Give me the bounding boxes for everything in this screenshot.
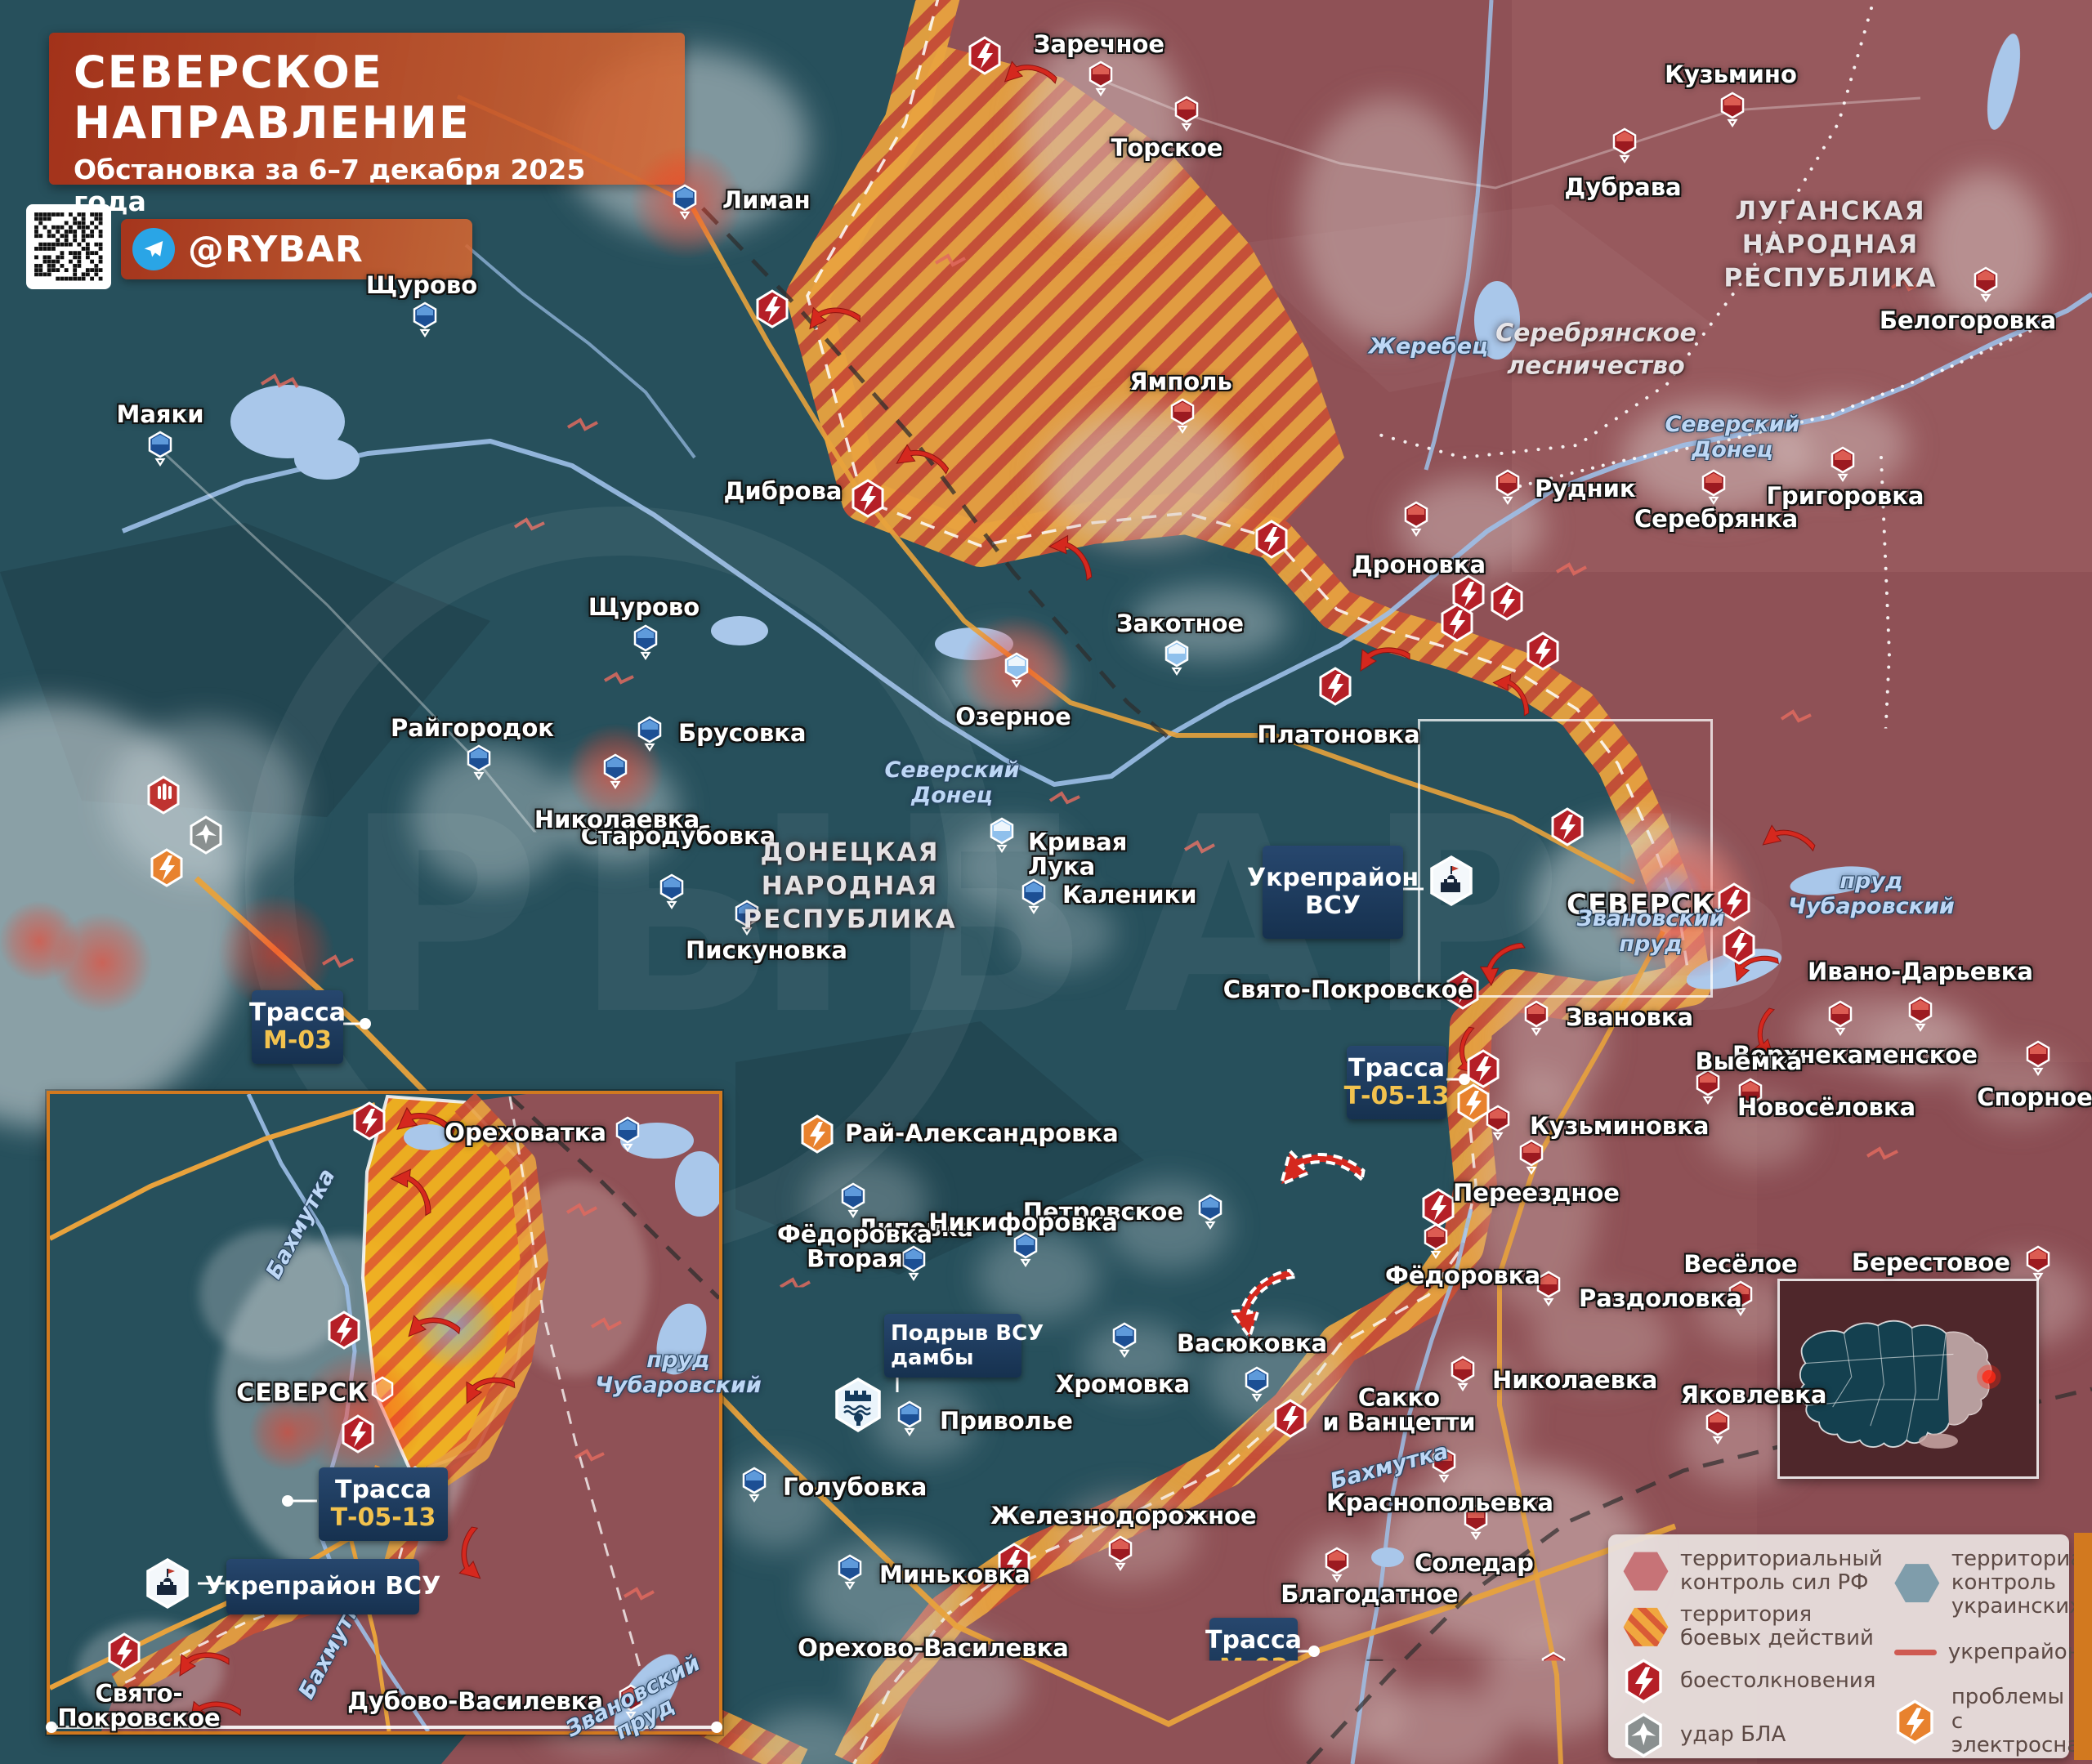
road-callout: Укрепрайон ВСУ xyxy=(226,1559,419,1614)
place-label-line: и Ванцетти xyxy=(1322,1410,1475,1435)
callout-line: М-03 xyxy=(1219,1655,1288,1681)
place-label-line: Маяки xyxy=(116,403,203,427)
region-label-line: НАРОДНАЯ xyxy=(743,870,956,904)
place-label-line: Берховка xyxy=(1494,1744,1624,1764)
road-callout: ТрассаМ-03 xyxy=(1209,1618,1298,1691)
place-label: СЕВЕРСК xyxy=(236,1382,368,1407)
callout-line: Т-05-13 xyxy=(331,1505,436,1531)
place-label-line: Переездное xyxy=(1453,1181,1620,1206)
place-label-line: Лиман xyxy=(722,189,811,213)
place-label: Райгородок xyxy=(391,717,554,741)
place-label: Ивано-Дарьевка xyxy=(1808,960,2033,985)
callout-line: Трасса xyxy=(1348,1056,1445,1082)
road-callout: ТрассаМ-03 xyxy=(252,990,343,1064)
water-label: прудЧубаровский xyxy=(595,1347,762,1398)
place-label-line: Покровское xyxy=(57,1706,220,1731)
water-label: Бахмутка xyxy=(261,1164,341,1283)
place-label-line: Берестовое xyxy=(1852,1251,2010,1275)
water-label: Жеребец xyxy=(1369,333,1488,359)
water-label-line: пруд xyxy=(595,1347,762,1373)
place-label: Васюковка xyxy=(1177,1332,1327,1356)
place-label-line: Диброва xyxy=(724,480,843,504)
place-label: Новосёловка xyxy=(1737,1096,1915,1120)
region-label-line: Серебрянское xyxy=(1495,317,1696,350)
callout-line: Трасса xyxy=(249,1000,346,1026)
road-callout: ТрассаТ-05-13 xyxy=(319,1467,448,1541)
road-callout: УкрепрайонВСУ xyxy=(1263,846,1403,939)
region-label-line: ДОНЕЦКАЯ xyxy=(743,837,956,870)
place-label-line: Красная Гора xyxy=(1326,1739,1513,1764)
callout-line: Укрепрайон xyxy=(1247,865,1419,891)
place-label-line: Соледар xyxy=(1415,1552,1534,1576)
place-label-line: Весёлое xyxy=(1683,1253,1797,1277)
place-label-line: Рудник xyxy=(1535,477,1636,502)
callout-line: ВСУ xyxy=(1305,893,1361,919)
water-label-line: Северский xyxy=(1665,412,1799,437)
place-label: Свято-Покровское xyxy=(1223,978,1473,1003)
place-label-line: Заречное xyxy=(1034,33,1164,57)
place-label: Маяки xyxy=(116,403,203,427)
place-label-line: Голубовка xyxy=(783,1476,927,1500)
region-label: ДОНЕЦКАЯНАРОДНАЯРЕСПУБЛИКА xyxy=(743,837,956,937)
place-label: Железнодорожное xyxy=(990,1504,1256,1529)
place-label: Озерное xyxy=(955,705,1071,730)
place-label: Свято-Покровское xyxy=(57,1681,220,1730)
place-label: Фёдоровка xyxy=(1385,1264,1540,1288)
place-label: Парасковиевка xyxy=(1129,1706,1339,1731)
place-label-line: Кузьминовка xyxy=(1530,1114,1709,1139)
place-label: Закотное xyxy=(1116,612,1244,636)
water-label-line: Бахмутка xyxy=(1327,1439,1451,1494)
place-label: Берховка xyxy=(1494,1744,1624,1764)
place-label: Рай-Александровка xyxy=(845,1122,1119,1146)
place-label-line: Райгородок xyxy=(391,717,554,741)
place-label-line: Каленики xyxy=(1062,883,1197,908)
place-label-line: Ивано-Дарьевка xyxy=(1808,960,2033,985)
callout-line: дамбы xyxy=(891,1346,973,1369)
place-label-line: Белогоровка xyxy=(1880,309,2056,333)
place-label: Николаевка xyxy=(534,808,700,833)
water-label-line: Жеребец xyxy=(1369,333,1488,359)
place-label-line: Дроновка xyxy=(1352,553,1486,578)
place-label-line: Ореховатка xyxy=(445,1121,606,1145)
road-callout: Подрыв ВСУдамбы xyxy=(884,1314,1021,1378)
place-label-line: Кривая xyxy=(1028,830,1127,855)
place-label: Ореховатка xyxy=(445,1121,606,1145)
region-label-line: лесничество xyxy=(1495,350,1696,382)
place-label-line: Миньковка xyxy=(879,1563,1030,1588)
water-label-line: Чубаровский xyxy=(1788,894,1955,919)
callout-line: Трасса xyxy=(335,1477,431,1503)
water-label-line: Донец xyxy=(884,783,1019,808)
place-label: Яковлевка xyxy=(1681,1383,1827,1408)
place-label-line: Брусовка xyxy=(678,721,806,746)
water-label-line: Северский xyxy=(884,757,1019,783)
callout-line: Трасса xyxy=(1205,1628,1302,1654)
place-label-line: Серебрянка xyxy=(1634,507,1798,532)
place-label: Николаевка xyxy=(1492,1369,1657,1393)
place-label: Кузьмино xyxy=(1665,63,1797,87)
place-label-line: Ямполь xyxy=(1129,370,1232,395)
place-label-line: Краснопольевка xyxy=(1326,1491,1553,1516)
place-label: Каленики xyxy=(1062,883,1197,908)
place-label: Щурово xyxy=(588,596,700,620)
place-label-line: Дубово-Василевка xyxy=(347,1690,603,1714)
place-label-line: Благодатное xyxy=(1281,1583,1458,1607)
place-label: Красная Гора xyxy=(1326,1739,1513,1764)
region-label: ЛУГАНСКАЯНАРОДНАЯРЕСПУБЛИКА xyxy=(1723,195,1937,296)
place-label: Серебрянка xyxy=(1634,507,1798,532)
water-label-line: Донец xyxy=(1665,437,1799,462)
place-label: Соледар xyxy=(1415,1552,1534,1576)
water-label-line: Чубаровский xyxy=(595,1373,762,1398)
place-label-line: Григоровка xyxy=(1767,485,1924,509)
place-label-line: Николаевка xyxy=(534,808,700,833)
callout-line: Т-05-13 xyxy=(1344,1083,1450,1110)
place-label: Голубовка xyxy=(783,1476,927,1500)
water-label-line: пруд xyxy=(1577,931,1725,957)
place-label: Белогоровка xyxy=(1880,309,2056,333)
place-label-line: Щурово xyxy=(588,596,700,620)
water-label-line: Бахмутка xyxy=(261,1164,341,1283)
place-label-line: Никифоровка xyxy=(928,1211,1118,1235)
place-label: Весёлое xyxy=(1683,1253,1797,1277)
place-label-line: Васюковка xyxy=(1177,1332,1327,1356)
place-label-line: Новосёловка xyxy=(1737,1096,1915,1120)
place-label-line: Николаевка xyxy=(1492,1369,1657,1393)
place-label: ФёдоровкаВторая xyxy=(777,1222,932,1271)
water-label-line: пруд xyxy=(1788,869,1955,894)
place-label: Звановка xyxy=(1566,1006,1693,1030)
place-label: Переездное xyxy=(1453,1181,1620,1206)
place-label: Брусовка xyxy=(678,721,806,746)
place-label: Торское xyxy=(1111,136,1223,161)
place-label: Краснопольевка xyxy=(1326,1491,1553,1516)
place-label-line: Выемка xyxy=(1696,1050,1803,1074)
water-label-line: Звановский xyxy=(1577,906,1725,931)
place-label: Благодатное xyxy=(1281,1583,1458,1607)
place-label: Хромовка xyxy=(1056,1373,1190,1397)
place-label: Орехово-Василевка xyxy=(798,1637,1069,1661)
place-label-line: Платоновка xyxy=(1257,723,1419,748)
place-label-line: Новомарково xyxy=(816,1737,999,1762)
place-label: Ямполь xyxy=(1129,370,1232,395)
place-label: Новомарково xyxy=(816,1737,999,1762)
label-layer: ЗаречноеТорскоеКузьминоДубраваЛиманЩуров… xyxy=(0,0,2092,1764)
place-label: Пискуновка xyxy=(686,939,847,963)
place-label: Диброва xyxy=(724,480,843,504)
place-label: Раздоловка xyxy=(1579,1287,1742,1311)
place-label: Дроновка xyxy=(1352,553,1486,578)
situation-map: ЗаречноеТорскоеКузьминоДубраваЛиманЩуров… xyxy=(0,0,2092,1764)
place-label-line: Фёдоровка xyxy=(1385,1264,1540,1288)
place-label-line: Свято- xyxy=(57,1681,220,1706)
place-label-line: Закотное xyxy=(1116,612,1244,636)
place-label-line: Бахмутское xyxy=(1366,1659,1527,1684)
water-label: Звановскийпруд xyxy=(562,1650,717,1764)
water-label: Бахмутка xyxy=(1327,1439,1451,1494)
callout-line: Укрепрайон ВСУ xyxy=(205,1574,441,1600)
place-label: Григоровка xyxy=(1767,485,1924,509)
place-label: Дубрава xyxy=(1564,176,1681,200)
place-label: КриваяЛука xyxy=(1028,830,1127,878)
place-label: Кузьминовка xyxy=(1530,1114,1709,1139)
place-label-line: Пискуновка xyxy=(686,939,847,963)
place-label: Лиман xyxy=(722,189,811,213)
road-callout: ТрассаТ-05-13 xyxy=(1347,1046,1446,1119)
place-label-line: Приволье xyxy=(940,1409,1073,1434)
place-label: Саккои Ванцетти xyxy=(1322,1386,1475,1434)
place-label: Никифоровка xyxy=(928,1211,1118,1235)
place-label-line: Рай-Александровка xyxy=(845,1122,1119,1146)
place-label: Бахмутское xyxy=(1366,1659,1527,1684)
place-label: Заречное xyxy=(1034,33,1164,57)
water-label: прудЧубаровский xyxy=(1788,869,1955,919)
place-label-line: Яковлевка xyxy=(1681,1383,1827,1408)
place-label-line: Раздоловка xyxy=(1579,1287,1742,1311)
place-label-line: Парасковиевка xyxy=(1129,1706,1339,1731)
place-label-line: Вторая xyxy=(777,1247,932,1271)
water-label: Звановскийпруд xyxy=(1577,906,1725,957)
place-label: Платоновка xyxy=(1257,723,1419,748)
place-label-line: Фёдоровка xyxy=(777,1222,932,1247)
region-label: Серебрянскоелесничество xyxy=(1495,317,1696,382)
place-label: Выемка xyxy=(1696,1050,1803,1074)
place-label: Спорное xyxy=(1977,1086,2092,1110)
place-label: Щурово xyxy=(366,274,477,298)
region-label-line: РЕСПУБЛИКА xyxy=(743,903,956,936)
water-label: СеверскийДонец xyxy=(1665,412,1799,462)
region-label-line: РЕСПУБЛИКА xyxy=(1723,261,1937,295)
place-label-line: Орехово-Василевка xyxy=(798,1637,1069,1661)
region-label-line: НАРОДНАЯ xyxy=(1723,229,1937,262)
place-label-line: Озерное xyxy=(955,705,1071,730)
place-label-line: Спорное xyxy=(1977,1086,2092,1110)
place-label-line: Дубрава xyxy=(1564,176,1681,200)
place-label-line: Торское xyxy=(1111,136,1223,161)
place-label-line: Щурово xyxy=(366,274,477,298)
place-label-line: Железнодорожное xyxy=(990,1504,1256,1529)
water-label: СеверскийДонец xyxy=(884,757,1019,808)
place-label: Дубово-Василевка xyxy=(347,1690,603,1714)
place-label-line: Сакко xyxy=(1322,1386,1475,1410)
place-label-line: Лука xyxy=(1028,855,1127,879)
place-label: Рудник xyxy=(1535,477,1636,502)
place-label-line: Хромовка xyxy=(1056,1373,1190,1397)
place-label-line: СЕВЕРСК xyxy=(236,1382,368,1407)
place-label-line: Кузьмино xyxy=(1665,63,1797,87)
callout-line: М-03 xyxy=(263,1028,332,1054)
place-label: Миньковка xyxy=(879,1563,1030,1588)
place-label-line: Звановка xyxy=(1566,1006,1693,1030)
place-label: Берестовое xyxy=(1852,1251,2010,1275)
place-label: Приволье xyxy=(940,1409,1073,1434)
place-label-line: Свято-Покровское xyxy=(1223,978,1473,1003)
region-label-line: ЛУГАНСКАЯ xyxy=(1723,195,1937,229)
callout-line: Подрыв ВСУ xyxy=(891,1322,1044,1345)
